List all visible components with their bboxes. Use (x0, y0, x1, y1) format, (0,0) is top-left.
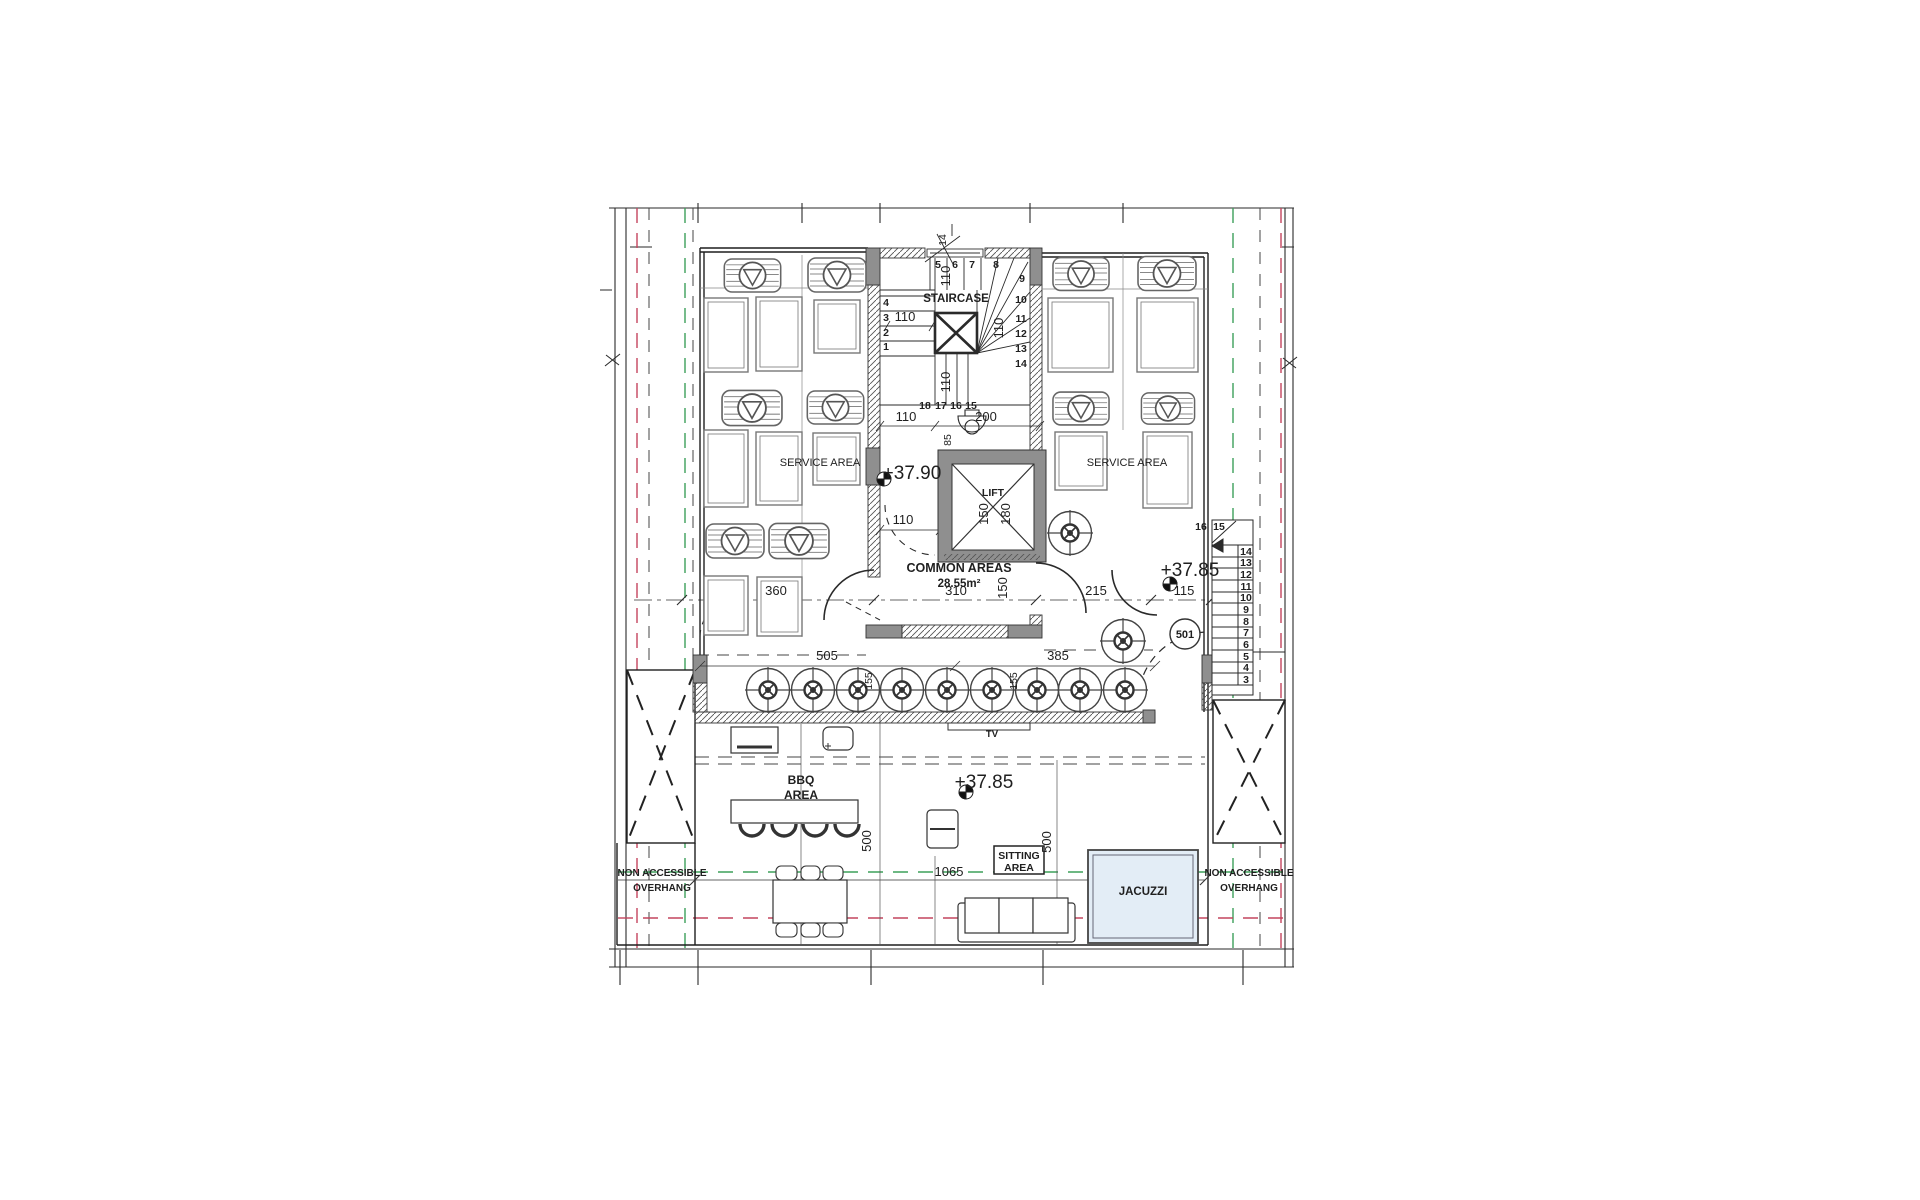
dim-385: 385 (1047, 648, 1069, 663)
common-areas-label: COMMON AREAS (906, 561, 1011, 575)
unit-number: 501 (1176, 629, 1194, 641)
dim-500-b: 500 (1039, 831, 1054, 853)
dim-85: 85 (942, 434, 954, 446)
dim-505: 505 (816, 648, 838, 663)
dim-110-a: 110 (895, 309, 916, 324)
tv-label: TV (986, 729, 999, 740)
dim-1065: 1065 (935, 864, 964, 879)
lift (938, 450, 1046, 562)
dim-200: 200 (975, 409, 997, 424)
step-number: 4 (1243, 662, 1249, 674)
overhang-left-box (627, 670, 695, 843)
step-number: 7 (969, 259, 975, 271)
step-number: 1 (883, 341, 889, 353)
step-number: 13 (1240, 557, 1252, 569)
step-number: 13 (1015, 343, 1027, 355)
step-number: 3 (1243, 674, 1249, 686)
step-number: 3 (883, 312, 889, 324)
dining-table (773, 880, 847, 923)
bar-stools (740, 824, 859, 836)
dim-110-f: 110 (893, 512, 914, 527)
step-number: 18 (919, 400, 931, 412)
grill (731, 727, 778, 753)
step-number: 14 (1015, 358, 1027, 370)
frame-cross-left (605, 354, 620, 366)
overhang-left-label-2: OVERHANG (633, 883, 691, 894)
step-number: 10 (1240, 592, 1252, 604)
service-area-left-label: SERVICE AREA (780, 457, 861, 469)
sitting-area-label-1: SITTING (998, 850, 1039, 862)
bbq-area-label-2: AREA (784, 788, 818, 802)
dim-150-b: 150 (995, 577, 1010, 599)
grid-ticks-top (698, 203, 1123, 223)
armchair (927, 810, 958, 848)
step-number: 17 (935, 400, 947, 412)
step-number: 16 (950, 400, 962, 412)
dim-110-d: 110 (938, 372, 953, 393)
dim-110-c: 110 (991, 318, 1006, 339)
jacuzzi-label: JACUZZI (1119, 886, 1168, 898)
level-3785-bottom: +37.85 (955, 772, 1014, 793)
lift-label: LIFT (982, 487, 1005, 499)
service-area-right-label: SERVICE AREA (1087, 457, 1168, 469)
step-number: 10 (1015, 294, 1027, 306)
floor-plan-page: STAIRCASE LIFT COMMON AREAS 28.55m² SERV… (0, 0, 1920, 1200)
bbq-furniture (690, 727, 1210, 943)
dim-155-b: 155 (1008, 672, 1020, 690)
step-number: 12 (1240, 569, 1252, 581)
dim-115: 115 (1174, 583, 1195, 598)
step-number: 9 (1019, 273, 1025, 285)
staircase-label: STAIRCASE (923, 293, 989, 305)
sitting-area-label-2: AREA (1004, 862, 1034, 874)
dim-150-lift: 150 (976, 503, 991, 525)
overhang-right-label-2: OVERHANG (1220, 883, 1278, 894)
overhang-right-box (1213, 700, 1285, 843)
step-number: 16 (1195, 521, 1207, 533)
bbq-area-label-1: BBQ (788, 773, 815, 787)
step-number: 4 (883, 297, 889, 309)
frame-cross-right (1282, 357, 1297, 369)
dim-500-a: 500 (859, 830, 874, 852)
dim-180-lift: 180 (998, 503, 1013, 525)
dim-110-e: 110 (896, 409, 917, 424)
floor-plan-drawing: STAIRCASE LIFT COMMON AREAS 28.55m² SERV… (0, 0, 1920, 1200)
sofa (958, 898, 1075, 942)
step-number: 15 (965, 400, 977, 412)
step-number: 2 (883, 327, 889, 339)
step-number: 11 (1015, 313, 1026, 325)
service-area-right-furniture (1042, 253, 1208, 508)
step-number: 5 (935, 259, 941, 271)
level-3790: +37.90 (883, 463, 942, 484)
service-area-left-furniture (700, 255, 868, 637)
step-number: 6 (952, 259, 958, 271)
step-number: 12 (1015, 328, 1027, 340)
step-number: 15 (1213, 521, 1225, 533)
bar-counter (731, 800, 858, 823)
dim-215: 215 (1085, 583, 1107, 598)
step-number: 9 (1243, 604, 1249, 616)
dim-310: 310 (945, 583, 967, 598)
dim-360: 360 (765, 583, 787, 598)
step-number: 8 (993, 259, 999, 271)
overhang-left-label-1: NON ACCESSIBLE (617, 868, 706, 879)
dim-14: 14 (937, 234, 949, 246)
step-number: 6 (1243, 639, 1249, 651)
overhang-right-label-1: NON ACCESSIBLE (1204, 868, 1293, 879)
level-3785-right: +37.85 (1161, 560, 1220, 581)
step-number: 7 (1243, 627, 1249, 639)
dim-155-a: 155 (863, 672, 875, 690)
